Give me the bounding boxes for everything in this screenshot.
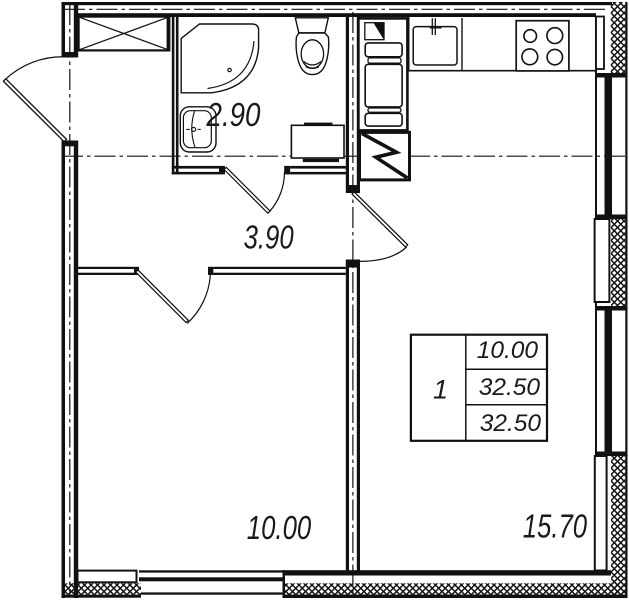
svg-text:2.90: 2.90 bbox=[206, 97, 261, 134]
svg-text:10.00: 10.00 bbox=[247, 510, 312, 547]
svg-text:32.50: 32.50 bbox=[480, 410, 542, 437]
svg-text:1: 1 bbox=[433, 375, 448, 405]
svg-text:3.90: 3.90 bbox=[244, 220, 295, 257]
svg-text:10.00: 10.00 bbox=[477, 337, 539, 364]
svg-text:15.70: 15.70 bbox=[523, 509, 588, 546]
svg-text:32.50: 32.50 bbox=[479, 374, 541, 401]
